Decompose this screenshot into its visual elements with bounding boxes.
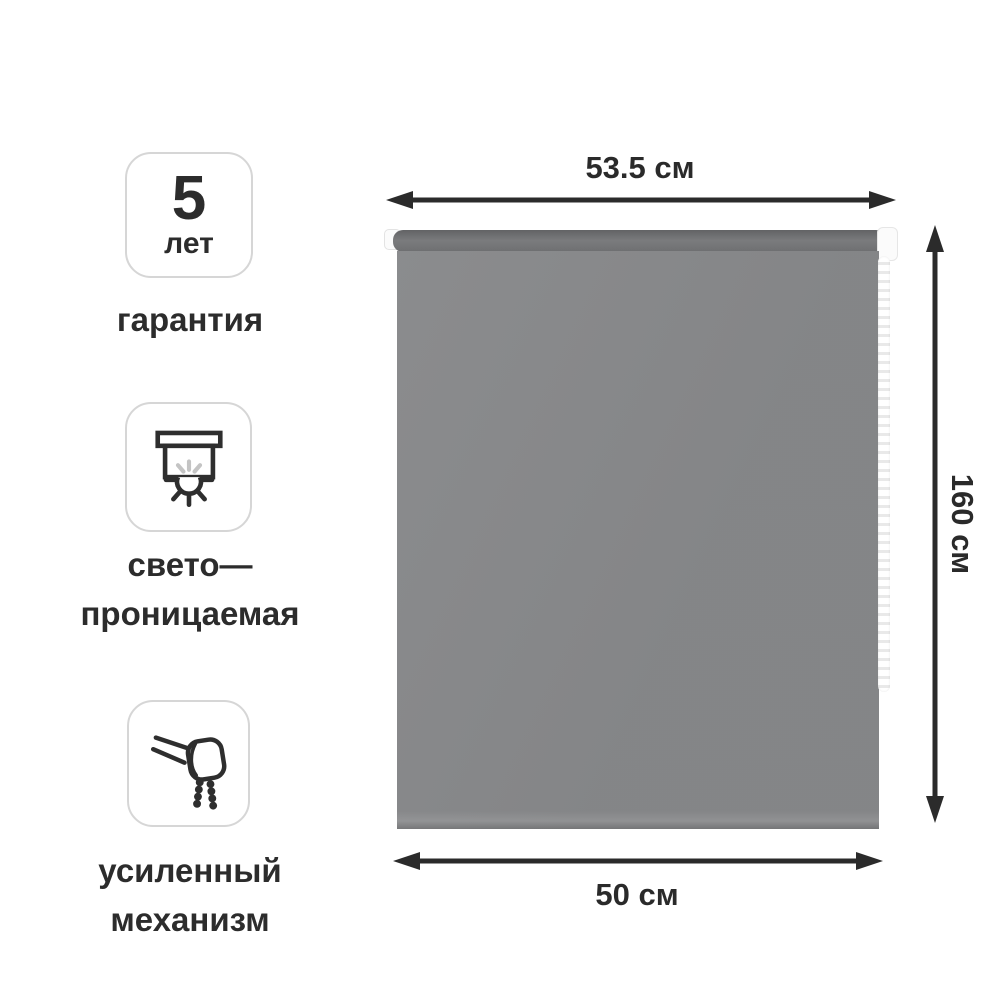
fabric-width-dimension-label: 50 см xyxy=(537,875,737,915)
mechanism-label-line1: усиленный xyxy=(30,846,350,895)
height-dimension-label: 160 см xyxy=(942,454,982,594)
bead-chain-glyph xyxy=(193,778,217,809)
blind-fabric xyxy=(397,251,879,829)
warranty-years-caption: лет xyxy=(164,228,214,260)
full-width-dimension-label: 53.5 см xyxy=(540,148,740,188)
light-permeable-label-line1: свето— xyxy=(30,540,350,589)
bottom-dimension-arrow xyxy=(392,850,884,872)
warranty-label: гарантия xyxy=(30,295,350,344)
bead-chain xyxy=(878,256,890,692)
mechanism-label-line2: механизм xyxy=(30,895,350,944)
light-permeable-badge xyxy=(125,402,252,532)
light-permeable-icon xyxy=(143,419,235,515)
warranty-badge: 5 лет xyxy=(125,152,253,278)
reinforced-mechanism-badge xyxy=(127,700,250,827)
reinforced-mechanism-icon xyxy=(144,717,234,811)
product-dimension-diagram: 5 лет гарантия свето— пр xyxy=(0,0,1000,1000)
warranty-years-number: 5 xyxy=(172,170,206,228)
roller-tube xyxy=(393,230,886,252)
light-permeable-label-line2: проницаемая xyxy=(30,589,350,638)
top-dimension-arrow xyxy=(385,189,897,211)
